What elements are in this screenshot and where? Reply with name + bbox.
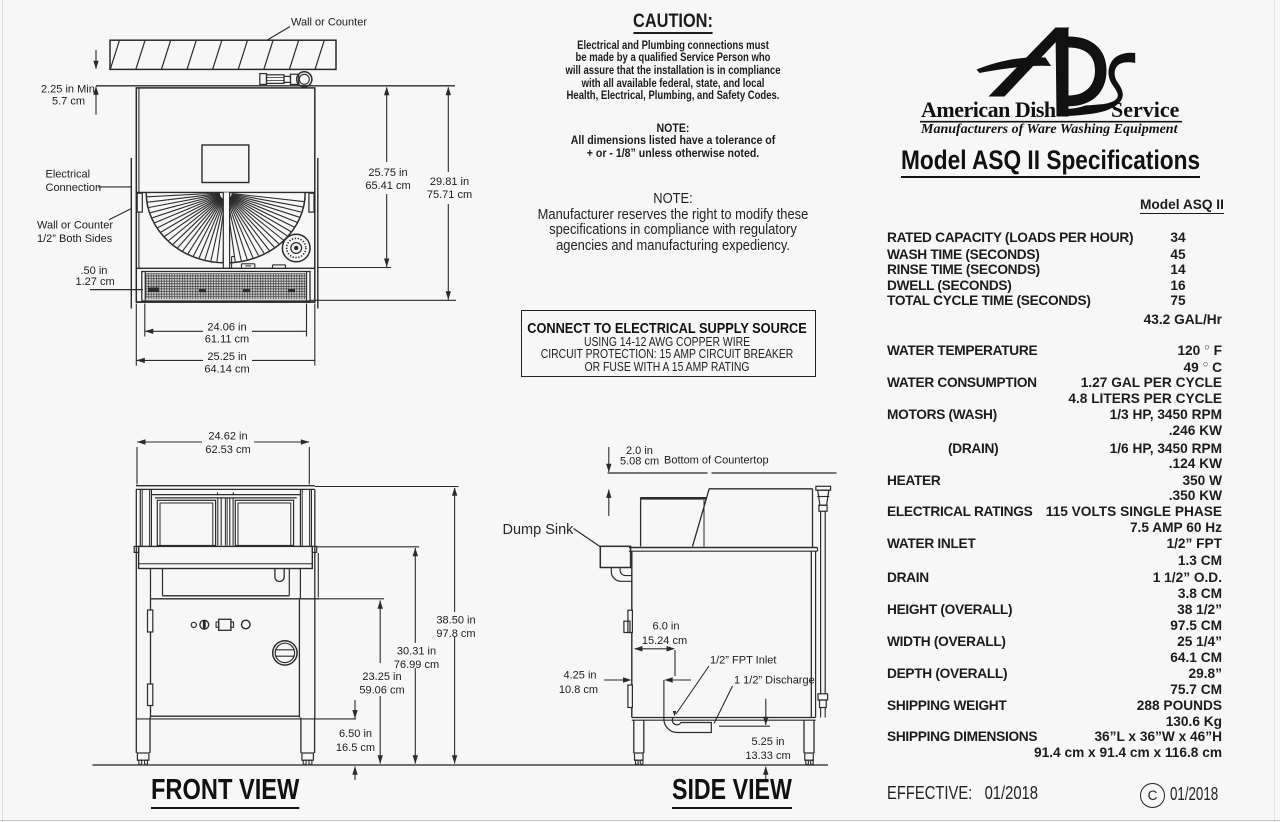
- svg-text:1 1/2” Discharge: 1 1/2” Discharge: [734, 675, 815, 687]
- svg-text:4.25 in: 4.25 in: [563, 670, 596, 682]
- svg-text:1/2” Both Sides: 1/2” Both Sides: [37, 233, 113, 245]
- svg-text:5.08 cm: 5.08 cm: [620, 456, 659, 468]
- svg-text:Bottom of Countertop: Bottom of Countertop: [664, 455, 769, 467]
- svg-text:25.25 in: 25.25 in: [207, 351, 246, 363]
- svg-text:2.25 in Min.: 2.25 in Min.: [41, 84, 98, 96]
- svg-text:10.8 cm: 10.8 cm: [559, 684, 598, 696]
- svg-text:5.25 in: 5.25 in: [751, 736, 784, 748]
- svg-text:59.06 cm: 59.06 cm: [359, 684, 404, 696]
- svg-text:5.7 cm: 5.7 cm: [52, 96, 85, 108]
- svg-text:25.75 in: 25.75 in: [368, 167, 407, 179]
- svg-text:61.11 cm: 61.11 cm: [205, 334, 249, 346]
- svg-text:6.50 in: 6.50 in: [339, 728, 372, 740]
- svg-text:38.50 in: 38.50 in: [436, 615, 475, 627]
- svg-text:62.53 cm: 62.53 cm: [205, 444, 250, 456]
- svg-text:24.06 in: 24.06 in: [207, 322, 246, 334]
- svg-text:6.0 in: 6.0 in: [653, 621, 680, 633]
- svg-text:13.33 cm: 13.33 cm: [745, 750, 790, 762]
- svg-text:Electrical: Electrical: [46, 169, 91, 181]
- svg-text:23.25 in: 23.25 in: [362, 671, 401, 683]
- svg-text:97.8 cm: 97.8 cm: [436, 628, 475, 640]
- svg-text:1/2” FPT Inlet: 1/2” FPT Inlet: [710, 655, 776, 667]
- svg-text:30.31 in: 30.31 in: [397, 645, 436, 657]
- svg-text:75.71 cm: 75.71 cm: [427, 189, 472, 201]
- svg-text:65.41 cm: 65.41 cm: [365, 180, 410, 192]
- svg-text:Wall or Counter: Wall or Counter: [37, 220, 113, 232]
- svg-text:16.5 cm: 16.5 cm: [336, 742, 375, 754]
- svg-text:Connection: Connection: [46, 182, 102, 194]
- svg-text:76.99 cm: 76.99 cm: [394, 659, 439, 671]
- svg-text:Wall or Counter: Wall or Counter: [291, 17, 367, 29]
- svg-text:29.81 in: 29.81 in: [430, 176, 469, 188]
- svg-text:15.24 cm: 15.24 cm: [642, 635, 687, 647]
- svg-text:1.27 cm: 1.27 cm: [76, 276, 115, 288]
- svg-text:24.62 in: 24.62 in: [208, 431, 247, 443]
- svg-text:Dump Sink: Dump Sink: [503, 522, 575, 538]
- svg-text:64.14 cm: 64.14 cm: [204, 364, 249, 376]
